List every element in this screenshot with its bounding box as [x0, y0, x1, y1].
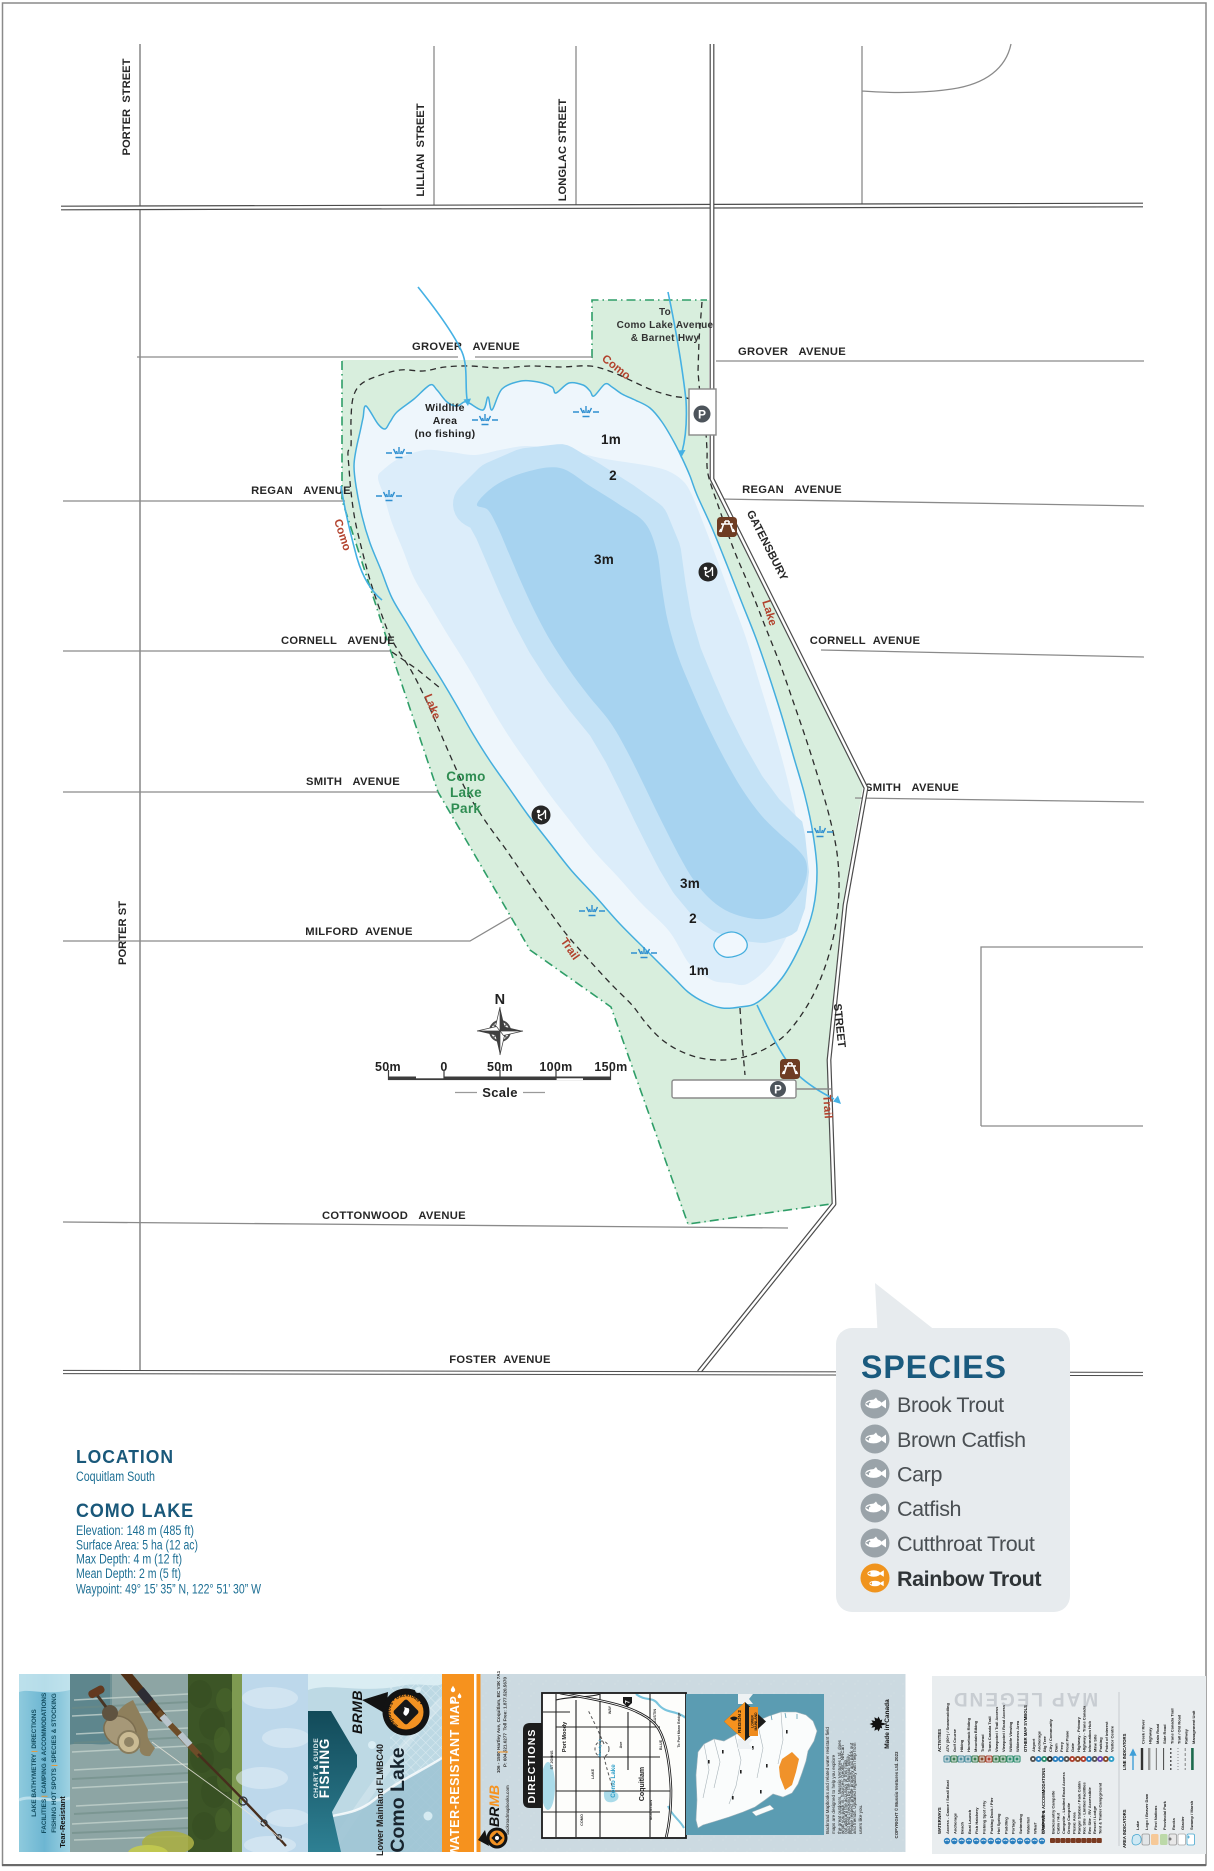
svg-text:Rainbow Trout: Rainbow Trout: [897, 1567, 1041, 1591]
svg-text:ATV (50+) / Snowmobiling: ATV (50+) / Snowmobiling: [945, 1703, 950, 1752]
svg-text:BRMB: BRMB: [486, 1785, 502, 1827]
svg-text:& Barnet Hwy: & Barnet Hwy: [631, 333, 700, 344]
svg-text:Logo / Beaver Dam: Logo / Beaver Dam: [1144, 1793, 1149, 1830]
svg-text:Catfish: Catfish: [897, 1497, 961, 1521]
svg-text:Wilderness Area: Wilderness Area: [1015, 1720, 1020, 1752]
svg-text:Rocks: Rocks: [1171, 1817, 1176, 1830]
svg-text:Paddling: Paddling: [1003, 1817, 1008, 1834]
svg-text:LAKE BATHYMETRY | DIRECTIONS: LAKE BATHYMETRY | DIRECTIONS: [31, 1709, 38, 1817]
svg-text:MOUNTAIN: MOUNTAIN: [649, 1800, 653, 1820]
svg-text:2: 2: [689, 911, 697, 926]
svg-text:Coquitlam: Coquitlam: [639, 1767, 646, 1801]
svg-text:REGION 2: REGION 2: [737, 1710, 743, 1733]
svg-text:Scale: Scale: [482, 1085, 517, 1100]
svg-text:N: N: [495, 992, 506, 1008]
svg-text:Como Lake: Como Lake: [610, 1764, 617, 1798]
svg-text:Mine Site: Mine Site: [1093, 1734, 1098, 1752]
svg-text:Wildlife Viewing: Wildlife Viewing: [1008, 1721, 1013, 1752]
svg-text:REGAN AVENUE: REGAN AVENUE: [251, 485, 351, 497]
svg-text:Anchorage: Anchorage: [1037, 1730, 1042, 1752]
svg-text:what you pack in. Sources: Geo: what you pack in. Sources: GeoBC, NRCan: [840, 1745, 845, 1834]
svg-text:CHART & GUIDE: CHART & GUIDE: [313, 1738, 320, 1799]
svg-text:Boat Launch: Boat Launch: [967, 1809, 972, 1834]
svg-text:MILFORD AVENUE: MILFORD AVENUE: [305, 926, 413, 938]
svg-text:Surface Area: 5 ha (12 ac): Surface Area: 5 ha (12 ac): [76, 1538, 198, 1553]
svg-text:users like you.: users like you.: [858, 1805, 863, 1834]
svg-text:OTHER MAP SYMBOLS: OTHER MAP SYMBOLS: [1023, 1705, 1028, 1752]
svg-text:COTTONWOOD AVENUE: COTTONWOOD AVENUE: [322, 1210, 466, 1222]
svg-text:P: 604.521.6277 Toll Free: 1.: P: 604.521.6277 Toll Free: 1.877.520.567…: [503, 1677, 508, 1768]
svg-text:Glacier: Glacier: [1180, 1816, 1185, 1830]
svg-text:Tent & Trailer Campground: Tent & Trailer Campground: [1097, 1782, 1102, 1834]
svg-text:1m: 1m: [601, 432, 621, 447]
svg-text:CORNELL AVENUE: CORNELL AVENUE: [810, 635, 921, 647]
svg-text:Point of Interest: Point of Interest: [1104, 1721, 1109, 1752]
svg-text:Mundy Lk: Mundy Lk: [598, 1738, 602, 1757]
svg-text:Hiking: Hiking: [959, 1739, 964, 1752]
svg-text:PORTER ST: PORTER ST: [117, 901, 129, 965]
svg-text:Swimming: Swimming: [1018, 1813, 1023, 1834]
svg-text:Parking: Parking: [1098, 1737, 1103, 1752]
svg-text:BRMB: BRMB: [349, 1690, 365, 1734]
svg-text:Trans Canada Trail: Trans Canada Trail: [1169, 1708, 1174, 1744]
svg-text:Area: Area: [433, 415, 458, 427]
svg-text:Viewpoint / Trail Access: Viewpoint / Trail Access: [994, 1706, 999, 1752]
svg-text:Beach: Beach: [960, 1821, 965, 1834]
svg-text:Mountain Biking: Mountain Biking: [973, 1720, 978, 1752]
svg-text:Anchorage: Anchorage: [952, 1812, 957, 1834]
svg-text:Swamp / Marsh: Swamp / Marsh: [1189, 1800, 1194, 1830]
svg-text:Como: Como: [446, 769, 485, 784]
svg-text:Lake: Lake: [1135, 1820, 1140, 1830]
svg-text:Golf Course: Golf Course: [952, 1728, 957, 1752]
svg-text:ST JOHNS: ST JOHNS: [550, 1750, 554, 1769]
svg-text:Brown Catfish: Brown Catfish: [897, 1428, 1026, 1452]
svg-text:LAKE: LAKE: [591, 1768, 595, 1779]
svg-text:Trans Canada Trail: Trans Canada Trail: [987, 1716, 992, 1752]
svg-text:REGAN AVENUE: REGAN AVENUE: [742, 484, 842, 496]
svg-text:3m: 3m: [680, 876, 700, 891]
svg-text:LOCATION: LOCATION: [76, 1447, 174, 1467]
svg-text:Carp: Carp: [897, 1463, 942, 1487]
svg-text:WATER-RESISTANT MAP: WATER-RESISTANT MAP: [448, 1696, 462, 1857]
svg-text:Port Moody: Port Moody: [562, 1721, 568, 1752]
svg-text:LILLIAN STREET: LILLIAN STREET: [415, 103, 427, 196]
svg-text:Waterfall: Waterfall: [1025, 1817, 1030, 1834]
svg-text:WATERWAYS: WATERWAYS: [937, 1807, 942, 1834]
svg-text:Lower Mainland FLMBC40: Lower Mainland FLMBC40: [375, 1744, 385, 1856]
svg-text:Trail: Trail: [820, 1095, 834, 1119]
svg-text:Management Unit: Management Unit: [1191, 1710, 1196, 1744]
svg-text:Trailhead: Trailhead: [980, 1734, 985, 1752]
svg-text:Park: Park: [451, 801, 482, 816]
svg-text:Viewpoint / Road Access: Viewpoint / Road Access: [1001, 1704, 1006, 1752]
svg-text:Lake: Lake: [450, 785, 482, 800]
svg-text:Dam: Dam: [1053, 1743, 1058, 1752]
svg-text:To Port Mann Bridge: To Port Mann Bridge: [677, 1712, 681, 1747]
svg-text:FACILITIES | CAMPING & ACCOMMO: FACILITIES | CAMPING & ACCOMMODATIONS: [41, 1692, 48, 1833]
svg-text:Trail / Old Road: Trail / Old Road: [1177, 1714, 1182, 1744]
svg-text:and friends. Updated regularly: and friends. Updated regularly with help…: [852, 1742, 857, 1834]
svg-text:LONGLAC STREET: LONGLAC STREET: [557, 99, 569, 202]
svg-text:Fishing Spot / Fly: Fishing Spot / Fly: [982, 1800, 987, 1834]
svg-text:Ave: Ave: [619, 1742, 623, 1749]
svg-text:Wildlife: Wildlife: [425, 402, 465, 414]
svg-text:Float Plane: Float Plane: [1065, 1730, 1070, 1752]
svg-text:Como: Como: [331, 518, 352, 553]
svg-text:SMITH AVENUE: SMITH AVENUE: [865, 782, 959, 794]
svg-text:FOSTER AVENUE: FOSTER AVENUE: [449, 1354, 551, 1366]
svg-text:COPYRIGHT © Mussio Ventures Lt: COPYRIGHT © Mussio Ventures Ltd. 2023: [894, 1751, 899, 1838]
svg-text:Main Road: Main Road: [1155, 1723, 1160, 1744]
svg-text:Portage: Portage: [1011, 1818, 1016, 1834]
svg-text:(no fishing): (no fishing): [415, 428, 476, 440]
svg-text:Brook Trout: Brook Trout: [897, 1393, 1004, 1417]
svg-text:Information Hub: Information Hub: [1087, 1721, 1092, 1752]
svg-text:backroadmapbooks.com: backroadmapbooks.com: [505, 1785, 510, 1835]
svg-text:1m: 1m: [689, 963, 709, 978]
svg-text:Elevation: 148 m (485 ft): Elevation: 148 m (485 ft): [76, 1523, 194, 1538]
svg-text:P: P: [698, 408, 706, 422]
svg-text:Big Tree: Big Tree: [1042, 1735, 1047, 1752]
svg-text:SMITH AVENUE: SMITH AVENUE: [306, 776, 400, 788]
svg-text:Cutthroat Trout: Cutthroat Trout: [897, 1532, 1035, 1556]
svg-text:maps are designed to help you: maps are designed to help you explore: [831, 1754, 836, 1834]
svg-text:Fish Hatchery: Fish Hatchery: [974, 1807, 979, 1834]
svg-text:Waypoint: 49° 15’ 35” N, 122°: Waypoint: 49° 15’ 35” N, 122° 51’ 30” W: [76, 1582, 261, 1597]
svg-text:AUSTIN: AUSTIN: [653, 1709, 657, 1723]
svg-text:SPECIES: SPECIES: [861, 1349, 1007, 1385]
svg-text:GROVER AVENUE: GROVER AVENUE: [412, 341, 520, 353]
svg-text:CORNELL AVENUE: CORNELL AVENUE: [281, 635, 395, 647]
svg-text:Creek / River: Creek / River: [1141, 1719, 1146, 1744]
svg-text:Gate: Gate: [1070, 1742, 1075, 1752]
svg-text:Side Road: Side Road: [1162, 1724, 1167, 1744]
svg-text:Highway - Trans Canada: Highway - Trans Canada: [1081, 1705, 1086, 1752]
svg-text:First Nations: First Nations: [1153, 1805, 1158, 1830]
svg-text:Horseback Riding: Horseback Riding: [966, 1717, 971, 1752]
svg-text:ACTIVITIES: ACTIVITIES: [937, 1729, 942, 1752]
svg-text:Como Lake: Como Lake: [387, 1747, 409, 1852]
svg-text:Mean Depth: 2 m (5 ft): Mean Depth: 2 m (5 ft): [76, 1566, 181, 1581]
svg-text:Access - Canoe / Small Boat: Access - Canoe / Small Boat: [945, 1780, 950, 1834]
svg-text:Hot Spring: Hot Spring: [996, 1813, 1001, 1834]
svg-text:P: P: [774, 1085, 782, 1097]
svg-text:Visitor Centre: Visitor Centre: [1109, 1725, 1114, 1752]
svg-text:Made in Canada: Made in Canada: [884, 1699, 891, 1749]
svg-text:FISHING HOT SPOTS | SPECIES &: FISHING HOT SPOTS | SPECIES & STOCKING: [51, 1693, 58, 1832]
svg-text:AREA INDICATORS: AREA INDICATORS: [1122, 1809, 1127, 1848]
svg-text:COMO: COMO: [580, 1814, 584, 1826]
svg-text:City / Community: City / Community: [1048, 1718, 1053, 1752]
svg-text:WAY: WAY: [608, 1705, 612, 1714]
svg-text:Airport: Airport: [1031, 1738, 1036, 1752]
svg-text:Highway: Highway: [1148, 1727, 1153, 1744]
svg-text:Provincial Park: Provincial Park: [1162, 1800, 1167, 1830]
svg-text:BLUE: BLUE: [659, 1739, 663, 1750]
svg-text:PORTER STREET: PORTER STREET: [121, 58, 133, 155]
svg-text:DIRECTIONS: DIRECTIONS: [526, 1729, 538, 1804]
svg-text:Tear-Resistant: Tear-Resistant: [58, 1796, 67, 1848]
svg-text:3m: 3m: [594, 552, 614, 567]
svg-text:2: 2: [609, 468, 617, 483]
svg-text:106 - 1500 Hartley Ave, Coquit: 106 - 1500 Hartley Ave, Coquitlam, BC V3…: [496, 1670, 501, 1773]
svg-text:To: To: [659, 307, 671, 318]
svg-text:CAMPING & ACCOMMODATIONS: CAMPING & ACCOMMODATIONS: [1041, 1768, 1046, 1834]
svg-text:LINE INDICATORS: LINE INDICATORS: [1122, 1733, 1127, 1770]
svg-text:Coquitlam South: Coquitlam South: [76, 1469, 155, 1484]
svg-text:Backroad Mapbooks and related: Backroad Mapbooks and related water resi…: [825, 1727, 830, 1834]
svg-text:COMO LAKE: COMO LAKE: [76, 1501, 194, 1522]
svg-text:MAINLAND: MAINLAND: [754, 1712, 758, 1731]
svg-text:and field checking by the Muss: and field checking by the Mussio family: [846, 1754, 851, 1834]
svg-text:Como Lake Avenue: Como Lake Avenue: [617, 320, 714, 331]
svg-text:GROVER AVENUE: GROVER AVENUE: [738, 346, 846, 358]
svg-text:Railway: Railway: [1184, 1728, 1189, 1744]
svg-text:Highway - Primary: Highway - Primary: [1076, 1716, 1081, 1752]
svg-text:Ferry: Ferry: [1059, 1741, 1064, 1752]
svg-text:Max Depth: 4 m (12 ft): Max Depth: 4 m (12 ft): [76, 1552, 182, 1567]
svg-text:Wharf: Wharf: [1033, 1822, 1038, 1834]
svg-text:Parking Dock / Pier: Parking Dock / Pier: [989, 1797, 994, 1834]
